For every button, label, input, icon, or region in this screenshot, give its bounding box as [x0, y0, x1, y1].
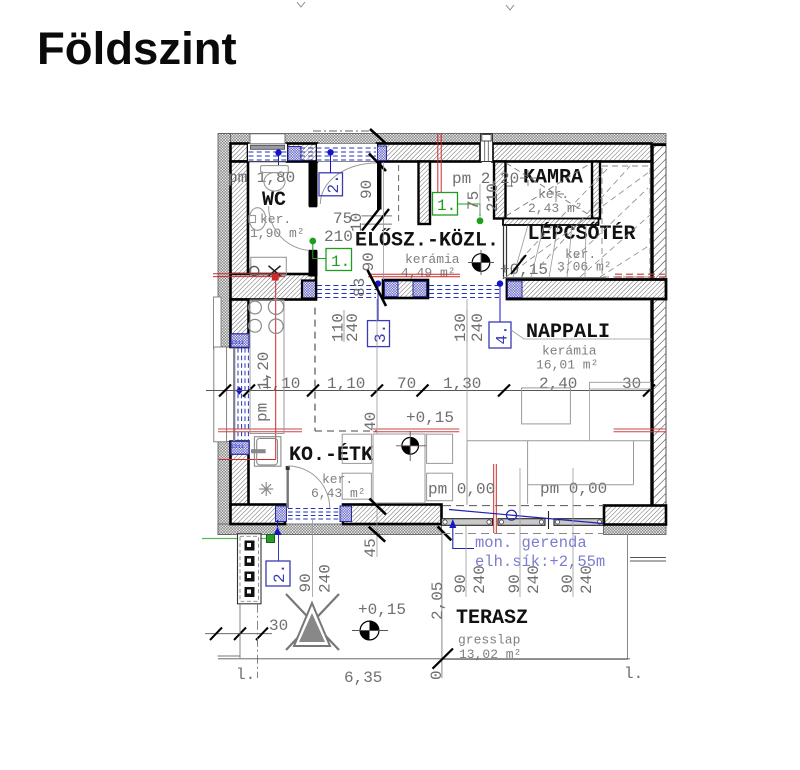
svg-text:+0,15: +0,15: [358, 601, 406, 619]
svg-text:1,30: 1,30: [443, 375, 481, 393]
svg-text:2.: 2.: [325, 174, 343, 193]
svg-text:45: 45: [362, 538, 380, 557]
svg-text:2.: 2.: [271, 564, 289, 583]
svg-text:1511: 1511: [231, 443, 245, 450]
svg-text:pm 0,00: pm 0,00: [428, 481, 495, 499]
svg-text:l.: l.: [624, 665, 643, 683]
svg-text:13,02 m²: 13,02 m²: [459, 647, 521, 662]
svg-text:TERASZ: TERASZ: [456, 607, 528, 630]
svg-text:4,49 m²: 4,49 m²: [401, 266, 456, 281]
svg-text:2,05: 2,05: [429, 582, 447, 620]
svg-text:240: 240: [578, 565, 596, 594]
svg-text:70: 70: [397, 375, 416, 393]
svg-text:2,40: 2,40: [539, 375, 577, 393]
svg-text:30: 30: [269, 617, 288, 635]
svg-text:83: 83: [351, 278, 369, 297]
svg-text:240: 240: [344, 313, 362, 342]
svg-text:240: 240: [471, 565, 489, 594]
svg-text:ELŐSZ.-KÖZL.: ELŐSZ.-KÖZL.: [355, 229, 499, 253]
svg-text:ker.: ker.: [538, 187, 569, 202]
svg-text:mon. gerenda: mon. gerenda: [475, 534, 587, 552]
svg-text:0: 0: [428, 670, 446, 680]
svg-text:1,10: 1,10: [327, 375, 365, 393]
svg-text:210: 210: [484, 183, 502, 212]
svg-text:16,01 m²: 16,01 m²: [536, 358, 598, 373]
svg-text:240: 240: [525, 565, 543, 594]
svg-text:30: 30: [622, 375, 641, 393]
svg-text:1.: 1.: [437, 197, 456, 215]
svg-text:1,20: 1,20: [255, 352, 273, 390]
svg-text:WC: WC: [262, 189, 286, 212]
svg-text:gresslap: gresslap: [458, 633, 520, 648]
svg-text:6,35: 6,35: [344, 669, 382, 687]
svg-text:2,43 m²: 2,43 m²: [528, 201, 583, 216]
svg-text:3,06 m²: 3,06 m²: [557, 260, 612, 275]
svg-text:pm 0,00: pm 0,00: [540, 480, 607, 498]
svg-text:90: 90: [559, 574, 577, 593]
svg-text:1511: 1511: [231, 339, 245, 346]
svg-text:3.: 3.: [372, 324, 390, 343]
svg-text:kerámia: kerámia: [542, 344, 597, 359]
svg-text:90: 90: [452, 574, 470, 593]
svg-text:l.: l.: [236, 666, 255, 684]
svg-text:1.: 1.: [331, 253, 350, 271]
svg-text:90: 90: [358, 180, 376, 199]
svg-text:240: 240: [317, 564, 335, 593]
svg-text:4.: 4.: [494, 325, 512, 344]
svg-text:Földszint: Földszint: [37, 23, 237, 74]
svg-text:+0,15: +0,15: [406, 409, 454, 427]
svg-text:pm: pm: [254, 403, 272, 422]
svg-text:ker.: ker.: [322, 472, 353, 487]
svg-text:90: 90: [360, 252, 378, 271]
svg-text:240: 240: [469, 313, 487, 342]
svg-text:90: 90: [506, 574, 524, 593]
svg-text:NAPPALI: NAPPALI: [526, 321, 610, 344]
svg-text:40: 40: [362, 412, 380, 431]
